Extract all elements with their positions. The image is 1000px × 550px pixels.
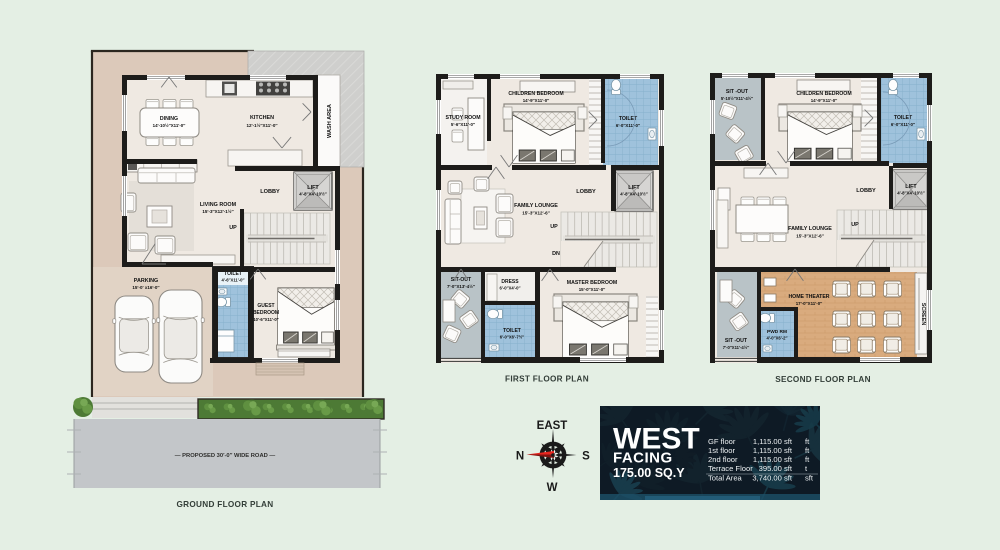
svg-text:sft: sft [805,474,814,483]
svg-text:4′-8″X4′-10½″: 4′-8″X4′-10½″ [897,191,924,196]
svg-text:GF floor: GF floor [708,437,736,446]
svg-text:LIFT: LIFT [307,185,319,191]
svg-text:SECOND FLOOR PLAN: SECOND FLOOR PLAN [775,375,871,384]
svg-text:14′-10½″X11′-0″: 14′-10½″X11′-0″ [153,123,187,128]
svg-text:4′-6″X11′-0″: 4′-6″X11′-0″ [221,278,244,283]
svg-text:10′-6″X11′-0″: 10′-6″X11′-0″ [253,317,278,322]
svg-text:GUEST: GUEST [257,303,274,309]
svg-text:Total Area: Total Area [708,474,743,483]
svg-text:FAMILY LOUNGE: FAMILY LOUNGE [514,203,558,209]
svg-text:15′-3″X12′-6″: 15′-3″X12′-6″ [796,234,824,239]
svg-text:FIRST FLOOR PLAN: FIRST FLOOR PLAN [505,375,589,384]
svg-text:LIVING ROOM: LIVING ROOM [200,202,237,208]
svg-text:FAMILY LOUNGE: FAMILY LOUNGE [788,226,832,232]
svg-text:15′-0″X11′-0″: 15′-0″X11′-0″ [579,287,606,292]
svg-text:N: N [516,451,524,463]
svg-text:EAST: EAST [537,420,568,432]
svg-text:1,115.00 sft: 1,115.00 sft [753,437,793,446]
svg-text:S: S [582,451,590,463]
svg-text:15′-0′ x16′-0″: 15′-0′ x16′-0″ [132,285,160,290]
svg-text:14′-9″X11′-0″: 14′-9″X11′-0″ [523,98,550,103]
svg-text:— PROPOSED 30′-0″ WIDE ROAD —: — PROPOSED 30′-0″ WIDE ROAD — [175,453,276,459]
svg-text:PWD RM: PWD RM [767,329,787,335]
svg-text:SIT -OUT: SIT -OUT [726,89,749,95]
svg-text:W: W [547,482,558,494]
svg-text:17′-0″X11′-0″: 17′-0″X11′-0″ [796,301,823,306]
svg-text:1,115.00 sft: 1,115.00 sft [753,446,793,455]
svg-text:7′-0″X11′-4½″: 7′-0″X11′-4½″ [723,345,750,350]
svg-text:CHILDREN BEDROOM: CHILDREN BEDROOM [508,91,563,97]
svg-text:6′-0″X4′-0″: 6′-0″X4′-0″ [500,286,521,291]
svg-text:LOBBY: LOBBY [260,189,280,195]
svg-text:2nd floor: 2nd floor [708,455,738,464]
svg-text:PARKING: PARKING [134,278,158,284]
svg-text:GROUND FLOOR PLAN: GROUND FLOOR PLAN [177,500,274,509]
svg-text:15′-3″X12′-1½″: 15′-3″X12′-1½″ [202,208,234,214]
svg-text:LIFT: LIFT [628,185,640,191]
svg-text:SIT -OUT: SIT -OUT [725,338,748,344]
svg-text:HOME THEATER: HOME THEATER [788,294,829,300]
svg-text:1st floor: 1st floor [708,446,735,455]
svg-text:12′-1½″X11′-0″: 12′-1½″X11′-0″ [247,122,279,128]
svg-text:6′-0″X11′-0″: 6′-0″X11′-0″ [891,122,916,127]
svg-text:WASH AREA: WASH AREA [327,104,333,138]
svg-text:KITCHEN: KITCHEN [250,115,274,121]
svg-text:4′-0″X6′-2″: 4′-0″X6′-2″ [767,336,788,341]
svg-text:TOILET: TOILET [503,328,521,334]
svg-text:LOBBY: LOBBY [856,188,876,194]
svg-text:395.00 sft: 395.00 sft [759,464,793,473]
svg-text:6′-0″X6′-7½″: 6′-0″X6′-7½″ [500,335,524,340]
svg-text:5′-6″X11′-0″: 5′-6″X11′-0″ [451,122,476,127]
svg-text:UP: UP [851,222,859,228]
svg-text:DINING: DINING [160,116,178,122]
svg-text:15′-3″X12′-6″: 15′-3″X12′-6″ [522,211,550,216]
svg-text:4′-8″X4′-10½″: 4′-8″X4′-10½″ [299,192,326,197]
svg-text:14′-9″X11′-0″: 14′-9″X11′-0″ [811,98,838,103]
svg-text:UP: UP [229,225,237,231]
svg-text:UP: UP [550,224,558,230]
svg-text:175.00 SQ.Y: 175.00 SQ.Y [613,466,685,480]
svg-text:7′-0″X13′-4½″: 7′-0″X13′-4½″ [447,284,476,289]
svg-text:FACING: FACING [613,450,673,467]
svg-text:LIFT: LIFT [905,184,917,190]
svg-text:5′-10½″X11′-4½″: 5′-10½″X11′-4½″ [721,96,753,101]
svg-text:BEDROOM: BEDROOM [253,310,279,316]
svg-text:LOBBY: LOBBY [576,189,596,195]
svg-text:DRESS: DRESS [501,279,519,285]
svg-text:6′-0″X11′-0″: 6′-0″X11′-0″ [616,123,641,128]
svg-text:1,115.00 sft: 1,115.00 sft [753,455,793,464]
svg-text:MASTER BEDROOM: MASTER BEDROOM [567,280,617,286]
svg-text:3,740.00 sft: 3,740.00 sft [752,474,793,483]
svg-text:SCREEN: SCREEN [920,303,926,326]
svg-text:Terrace Floor: Terrace Floor [708,464,753,473]
svg-text:SIT-OUT: SIT-OUT [451,277,472,283]
svg-text:STUDY ROOM: STUDY ROOM [445,115,480,121]
svg-text:CHILDREN BEDROOM: CHILDREN BEDROOM [796,91,851,97]
svg-text:DN: DN [552,251,560,257]
svg-text:4′-8″X4′-10½″: 4′-8″X4′-10½″ [620,192,647,197]
